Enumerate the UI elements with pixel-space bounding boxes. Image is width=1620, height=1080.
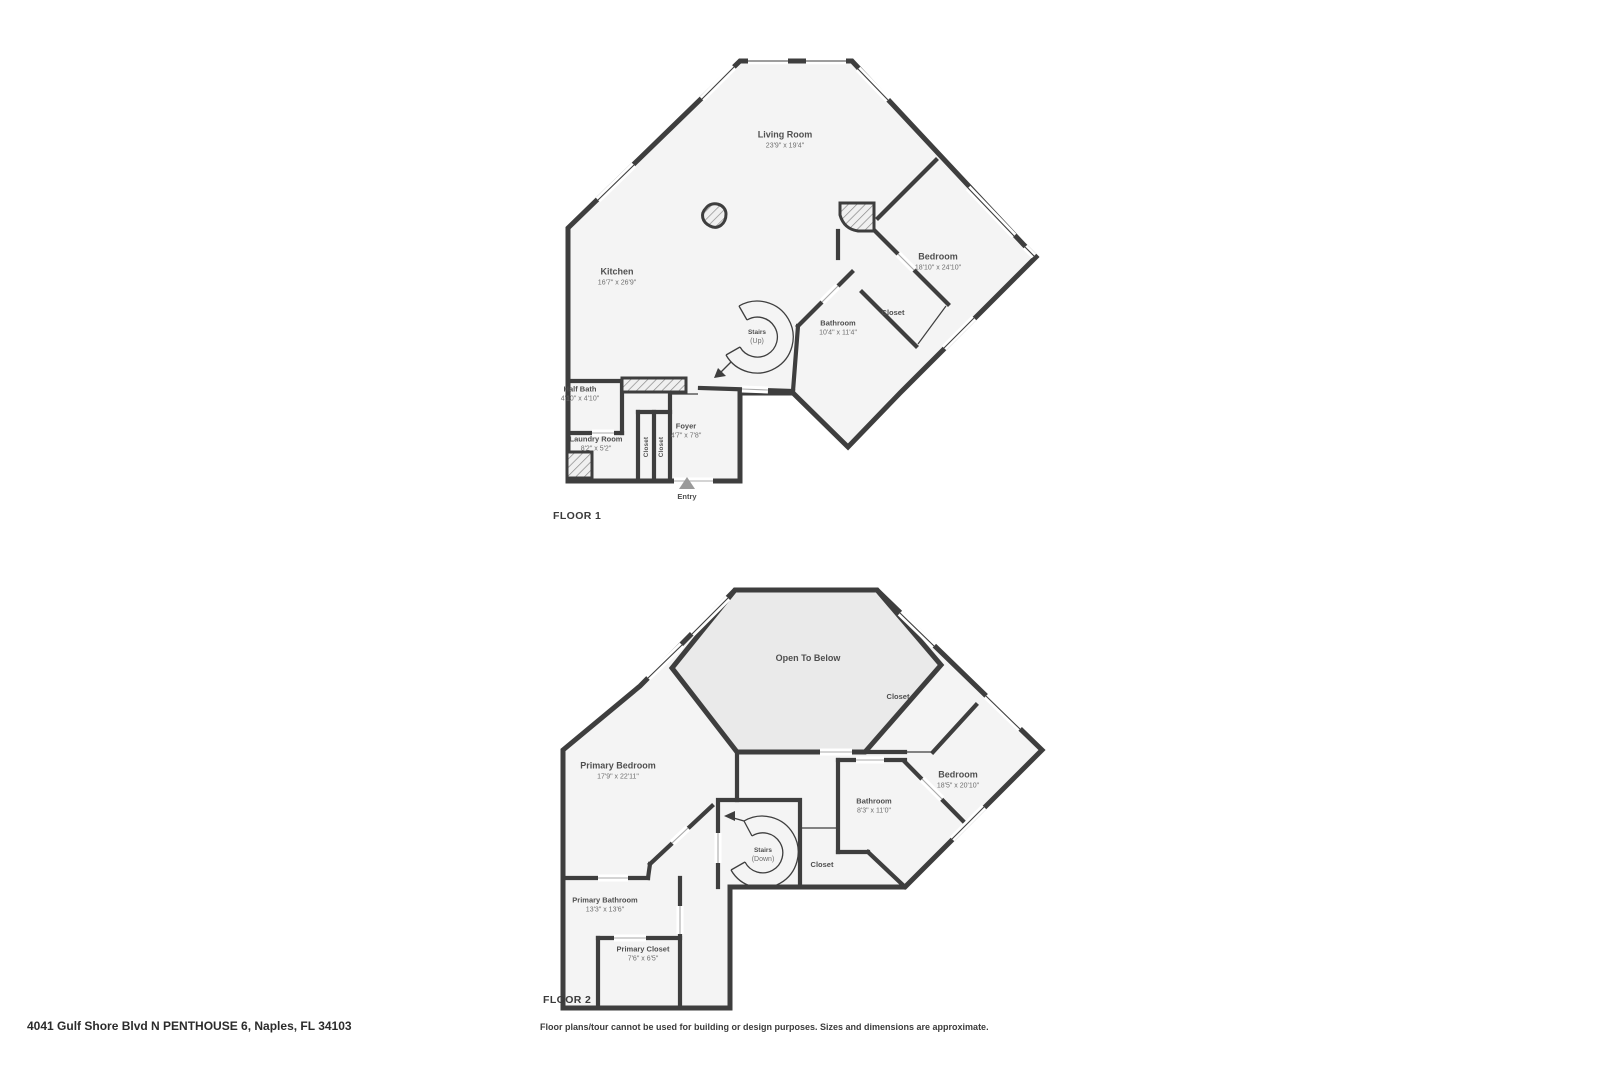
room-name: Bedroom [937,770,979,782]
labels-layer: Living Room 23'9" x 19'4" Kitchen 16'7" … [0,0,1620,1080]
room-name: Living Room [758,130,813,142]
room-dims: 10'4" x 11'4" [819,328,857,337]
room-dims: 7'6" x 6'5" [617,954,670,963]
room-dims: 18'5" x 20'10" [937,781,979,790]
room-dims: 8'3" x 11'0" [856,806,891,815]
room-label-living-room: Living Room 23'9" x 19'4" [758,130,813,151]
room-name: Stairs [748,329,766,337]
floor2-label: FLOOR 2 [543,994,591,1006]
room-dims: 17'9" x 22'11" [580,772,656,781]
entry-label: Entry [677,492,696,502]
disclaimer-text: Floor plans/tour cannot be used for buil… [540,1022,989,1032]
room-name: Laundry Room [570,435,623,445]
room-label-stairs-down: Stairs (Down) [752,847,775,865]
room-label-stairs-up: Stairs (Up) [748,329,766,347]
room-label-kitchen: Kitchen 16'7" x 26'9" [598,267,636,288]
room-label-bedroom-f1: Bedroom 18'10" x 24'10" [915,252,961,273]
room-name: Primary Closet [617,945,670,955]
room-label-open-to-below: Open To Below [776,653,841,665]
room-name: Bathroom [819,319,857,329]
room-label-primary-bedroom: Primary Bedroom 17'9" x 22'11" [580,761,656,782]
room-name: Bathroom [856,797,891,807]
room-label-laundry-room: Laundry Room 8'2" x 5'2" [570,435,623,454]
room-dims: 18'10" x 24'10" [915,263,961,272]
room-dims: 4'10" x 4'10" [561,394,599,403]
room-name: Open To Below [776,653,841,665]
room-label-closet-mid-f2: Closet [811,860,834,870]
room-name: Primary Bathroom [572,896,637,906]
room-name: Foyer [671,422,702,432]
room-dims: 16'7" x 26'9" [598,278,636,287]
room-name: Closet [811,860,834,870]
room-name: Closet [882,308,905,318]
room-name: Stairs [752,847,775,855]
room-label-bathroom-f2: Bathroom 8'3" x 11'0" [856,797,891,816]
room-label-closet-hall-1: Closet [643,437,651,457]
address-text: 4041 Gulf Shore Blvd N PENTHOUSE 6, Napl… [27,1019,352,1033]
room-name: Kitchen [598,267,636,279]
room-dims: 23'9" x 19'4" [758,141,813,150]
room-dims: 13'3" x 13'6" [572,905,637,914]
room-label-half-bath: Half Bath 4'10" x 4'10" [561,385,599,404]
room-name: Closet [658,437,666,457]
room-label-primary-closet: Primary Closet 7'6" x 6'5" [617,945,670,964]
room-label-foyer: Foyer 4'7" x 7'8" [671,422,702,441]
room-label-closet-top-f2: Closet [887,692,910,702]
room-label-bedroom-f2: Bedroom 18'5" x 20'10" [937,770,979,791]
room-name: Entry [677,492,696,502]
room-dims: (Down) [752,856,775,865]
floor1-label: FLOOR 1 [553,510,601,522]
room-name: Bedroom [915,252,961,264]
floor-plan-page: Living Room 23'9" x 19'4" Kitchen 16'7" … [0,0,1620,1080]
room-name: Primary Bedroom [580,761,656,773]
room-dims: (Up) [748,338,766,347]
room-label-closet-f1: Closet [882,308,905,318]
room-label-bathroom-f1: Bathroom 10'4" x 11'4" [819,319,857,338]
room-name: Closet [887,692,910,702]
room-dims: 8'2" x 5'2" [570,444,623,453]
room-label-primary-bathroom: Primary Bathroom 13'3" x 13'6" [572,896,637,915]
room-name: Closet [643,437,651,457]
room-label-closet-hall-2: Closet [658,437,666,457]
room-name: Half Bath [561,385,599,395]
room-dims: 4'7" x 7'8" [671,431,702,440]
